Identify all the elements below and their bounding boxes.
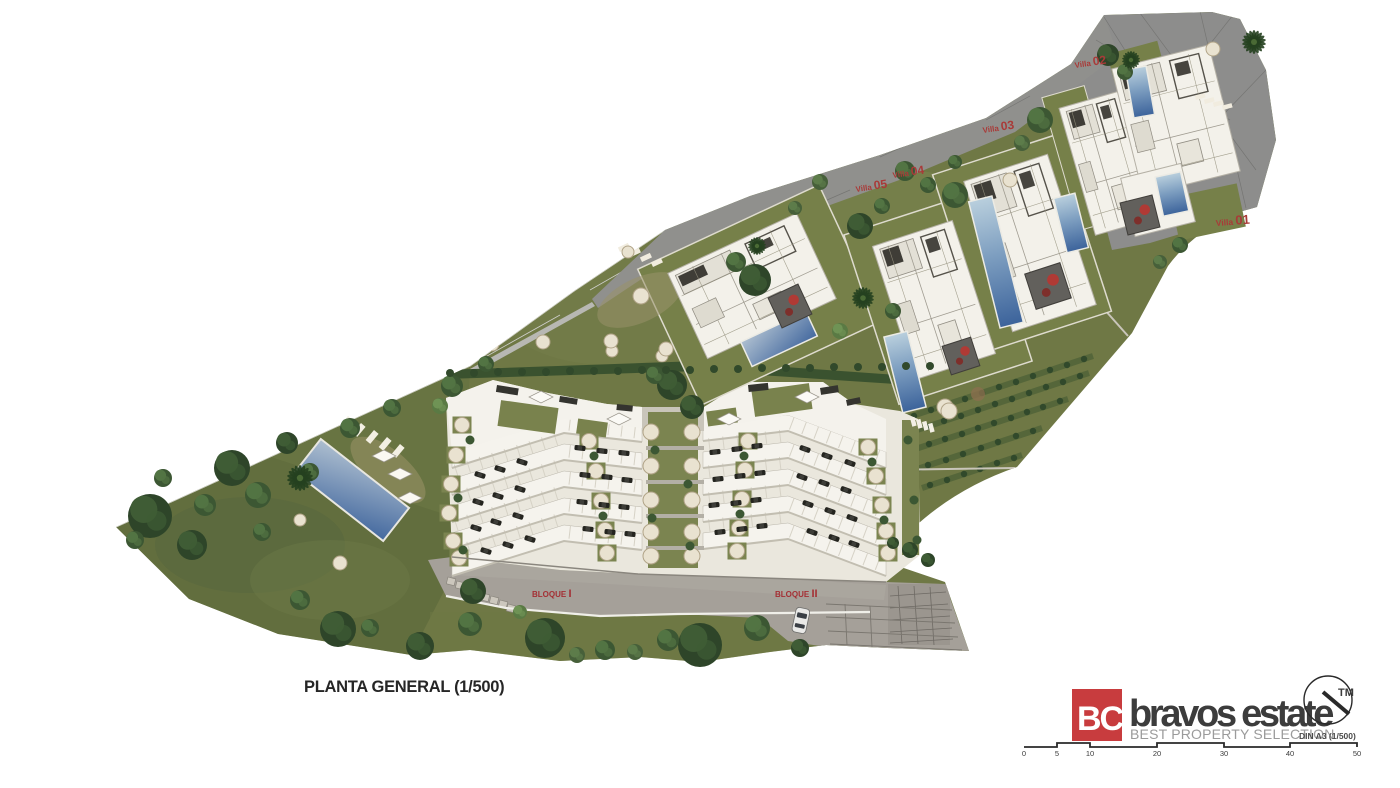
svg-text:5: 5 — [1055, 749, 1059, 758]
svg-text:PLANTA GENERAL (1/500): PLANTA GENERAL (1/500) — [304, 678, 504, 696]
svg-text:50: 50 — [1353, 749, 1361, 758]
svg-text:BLOQUE II: BLOQUE II — [775, 588, 818, 600]
svg-text:0: 0 — [1022, 749, 1026, 758]
svg-text:10: 10 — [1086, 749, 1094, 758]
svg-text:20: 20 — [1153, 749, 1161, 758]
svg-text:30: 30 — [1220, 749, 1228, 758]
svg-text:BC: BC — [1077, 700, 1124, 738]
svg-text:BLOQUE I: BLOQUE I — [532, 588, 572, 600]
svg-text:40: 40 — [1286, 749, 1294, 758]
svg-text:DIN A3 (1/500): DIN A3 (1/500) — [1299, 731, 1356, 741]
svg-text:TM: TM — [1338, 687, 1354, 699]
